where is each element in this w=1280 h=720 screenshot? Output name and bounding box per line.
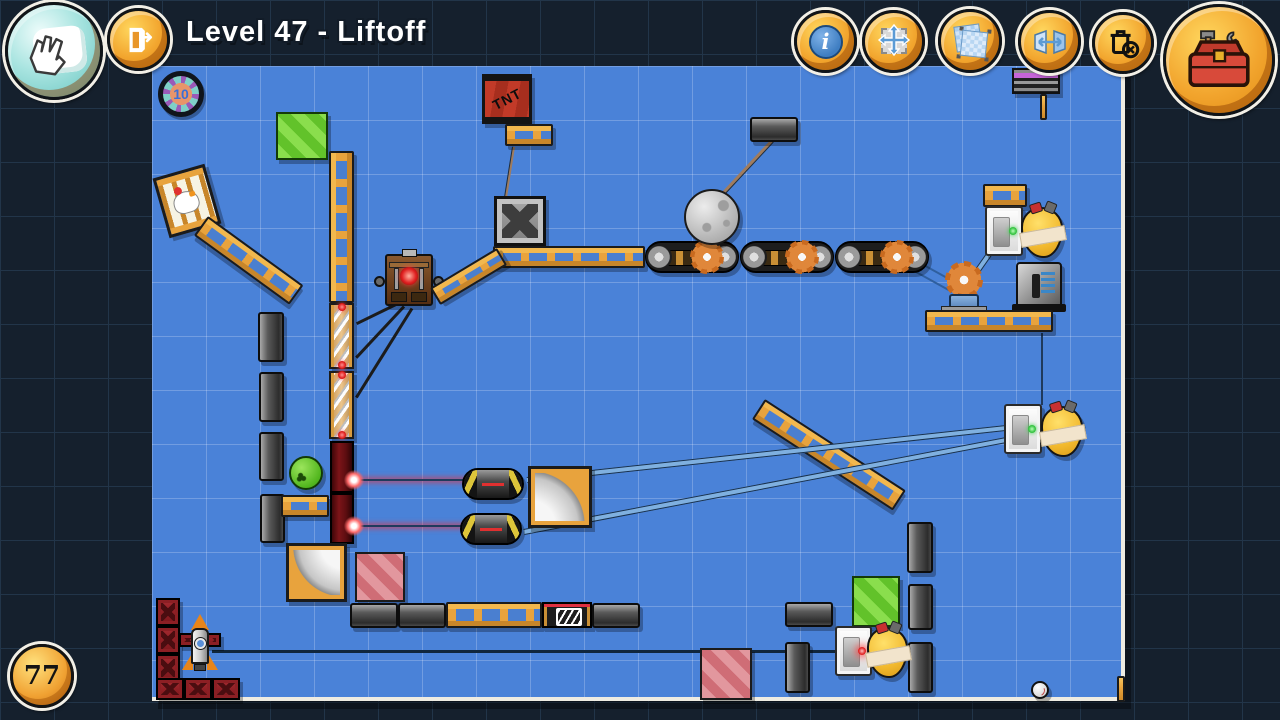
baseball-stitch xyxy=(1032,683,1046,697)
laser-glow-1 xyxy=(344,470,364,490)
flip-button[interactable] xyxy=(1018,10,1081,73)
parts-count-label: 10 xyxy=(173,86,189,102)
plank-under-ball[interactable] xyxy=(281,495,329,517)
conveyor-gear-1[interactable] xyxy=(690,240,724,274)
spring-segment-1[interactable] xyxy=(329,303,354,369)
moon-ball[interactable] xyxy=(684,189,740,245)
green-striped-crate-1[interactable] xyxy=(276,112,328,160)
girder-block[interactable] xyxy=(156,598,180,626)
capsule-end xyxy=(464,470,477,498)
laser-glow-2 xyxy=(344,516,364,536)
generator-panel-left xyxy=(391,292,407,302)
conveyor-roller xyxy=(741,244,767,270)
metal-plank[interactable] xyxy=(785,602,833,627)
edge-stick[interactable] xyxy=(1117,676,1125,702)
metal-plank[interactable] xyxy=(908,584,933,630)
hive-creature-2[interactable] xyxy=(1041,406,1083,457)
baseball[interactable] xyxy=(1031,681,1049,699)
tnt-label: TNT xyxy=(484,82,530,116)
spring-segment-2[interactable] xyxy=(329,371,354,439)
metal-plank[interactable] xyxy=(350,603,398,628)
info-icon: i xyxy=(809,25,843,59)
supply-slot xyxy=(1032,274,1040,298)
generator-lamp xyxy=(400,267,418,285)
delete-parts-icon xyxy=(1104,24,1142,62)
girder-block[interactable] xyxy=(184,678,212,700)
creature-bandage xyxy=(1019,225,1067,248)
switch-led xyxy=(1009,227,1017,235)
delete-parts-button[interactable] xyxy=(1092,12,1154,74)
creature-bandage xyxy=(865,645,912,668)
spring-trap-plank[interactable] xyxy=(542,602,592,628)
conveyor-roller xyxy=(836,244,862,270)
laser-beam-1 xyxy=(354,479,466,481)
metal-plank[interactable] xyxy=(785,642,810,693)
pink-striped-crate-2[interactable] xyxy=(700,648,752,700)
creature-bandage xyxy=(1039,424,1087,447)
tnt-crate[interactable]: TNT xyxy=(482,74,532,124)
power-supply-box[interactable] xyxy=(1016,262,1062,308)
info-button[interactable]: i xyxy=(794,10,857,73)
rocket[interactable] xyxy=(180,612,220,678)
metal-plank[interactable] xyxy=(259,372,284,422)
switch-led xyxy=(1028,425,1036,433)
select-button[interactable] xyxy=(938,9,1002,73)
wooden-plank[interactable] xyxy=(446,602,542,628)
capsule-stripe xyxy=(480,528,502,531)
generator-machine[interactable] xyxy=(385,254,433,306)
switch-toggle xyxy=(1012,415,1029,445)
metal-plank[interactable] xyxy=(592,603,640,628)
supply-vents xyxy=(1041,272,1055,294)
generator-panel-right xyxy=(411,292,427,302)
select-square-front xyxy=(960,30,989,59)
door-exit-icon xyxy=(121,22,157,58)
long-plank[interactable] xyxy=(493,246,645,268)
trap-spring-glyph xyxy=(556,608,582,626)
generator-tab xyxy=(402,249,417,257)
metal-plank[interactable] xyxy=(398,603,446,628)
capsule-stripe xyxy=(482,483,504,486)
solutions-count-label: 77 xyxy=(24,661,60,691)
rocket-window xyxy=(195,638,206,649)
generator-post-left xyxy=(394,268,399,290)
girder-block[interactable] xyxy=(212,678,240,700)
plank-under-tnt[interactable] xyxy=(505,124,553,146)
steel-crate[interactable] xyxy=(494,196,546,246)
metal-plank[interactable] xyxy=(907,522,933,573)
solutions-count-coin: 77 xyxy=(10,644,74,708)
laser-receiver-2[interactable] xyxy=(460,513,522,545)
sign-post xyxy=(1040,94,1047,120)
hive-creature-3[interactable] xyxy=(867,627,908,678)
conveyor-gear-2[interactable] xyxy=(785,240,819,274)
hand-tool-button[interactable] xyxy=(5,2,103,100)
hand-icon xyxy=(20,27,74,81)
plank-top-right[interactable] xyxy=(983,184,1027,207)
laser-beam-2 xyxy=(354,525,464,527)
level-title: Level 47 - Liftoff xyxy=(186,16,426,49)
power-switch-1[interactable] xyxy=(985,206,1023,256)
green-bowling-ball[interactable] xyxy=(289,456,323,490)
girder-block[interactable] xyxy=(156,678,184,700)
green-striped-crate-2[interactable] xyxy=(852,576,900,627)
flip-horizontal-icon xyxy=(1030,22,1070,62)
parts-count-badge: 10 xyxy=(158,71,204,117)
curved-ramp-left[interactable] xyxy=(286,543,347,602)
capsule-end xyxy=(507,515,520,543)
curved-ramp-right[interactable] xyxy=(528,466,592,528)
move-button[interactable] xyxy=(862,10,925,73)
metal-plank[interactable] xyxy=(259,432,284,481)
tower-ladder[interactable] xyxy=(329,151,354,303)
switch-toggle xyxy=(993,217,1010,247)
rope-platform-switch[interactable] xyxy=(1041,333,1043,405)
generator-post-right xyxy=(419,268,424,290)
generator-arm-left xyxy=(374,276,385,287)
hanging-metal-plank[interactable] xyxy=(750,117,798,142)
pink-striped-crate-1[interactable] xyxy=(355,552,405,602)
metal-plank[interactable] xyxy=(908,642,933,693)
hive-creature-1[interactable] xyxy=(1021,207,1063,258)
game-screen: { "hud": { "level_title": "Level 47 - Li… xyxy=(0,0,1280,720)
capsule-end xyxy=(462,515,475,543)
girder-block[interactable] xyxy=(156,626,180,654)
toolbox-icon xyxy=(1183,27,1255,93)
capsule-end xyxy=(509,470,522,498)
move-arrows-icon xyxy=(874,21,914,61)
laser-receiver-1[interactable] xyxy=(462,468,524,500)
rocket-nozzle xyxy=(194,664,206,671)
exit-button[interactable] xyxy=(107,8,170,71)
toolbox-button[interactable] xyxy=(1163,4,1275,116)
power-switch-2[interactable] xyxy=(1004,404,1042,454)
conveyor-gear-3[interactable] xyxy=(880,240,914,274)
conveyor-roller xyxy=(646,244,672,270)
machine-platform[interactable] xyxy=(925,310,1053,332)
metal-plank[interactable] xyxy=(258,312,284,362)
